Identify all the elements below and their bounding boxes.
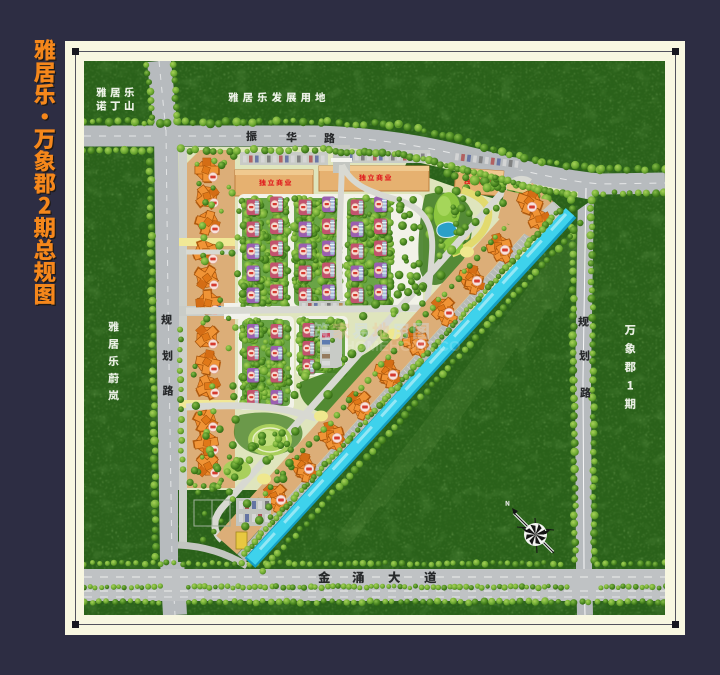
svg-text:HOMEHOME.CO: HOMEHOME.CO [344, 338, 461, 355]
